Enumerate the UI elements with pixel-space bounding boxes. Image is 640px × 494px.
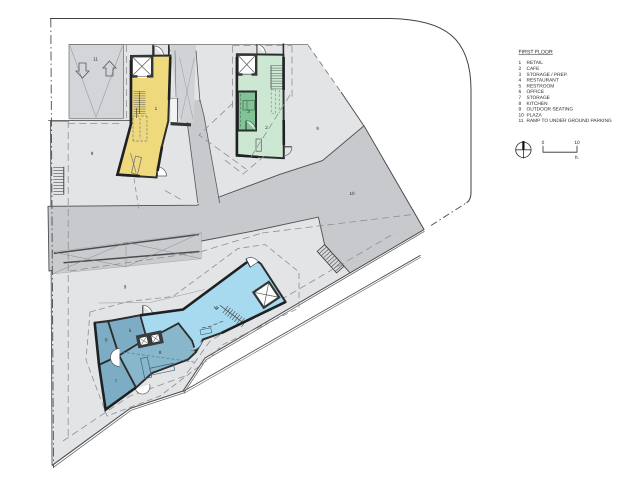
svg-text:STORAGE: STORAGE	[527, 95, 550, 101]
svg-text:6: 6	[519, 89, 522, 95]
svg-text:2: 2	[519, 66, 522, 72]
svg-text:ft.: ft.	[575, 155, 579, 161]
svg-text:5: 5	[129, 328, 132, 333]
svg-text:9: 9	[91, 151, 94, 156]
svg-text:STORAGE / PREP.: STORAGE / PREP.	[527, 72, 568, 78]
svg-text:OFFICE: OFFICE	[527, 89, 545, 95]
svg-text:9: 9	[124, 285, 127, 290]
svg-text:CAFE: CAFE	[527, 66, 540, 72]
svg-text:10: 10	[574, 140, 580, 146]
svg-text:9: 9	[519, 107, 522, 113]
svg-text:RETAIL: RETAIL	[527, 60, 544, 66]
svg-text:RESTAURANT: RESTAURANT	[527, 78, 559, 84]
svg-text:FIRST FLOOR: FIRST FLOOR	[519, 50, 553, 56]
svg-text:5: 5	[519, 83, 522, 89]
svg-text:2: 2	[265, 125, 268, 130]
svg-text:1: 1	[519, 60, 522, 66]
svg-text:KITCHEN: KITCHEN	[527, 101, 549, 107]
svg-text:RAMP TO UNDER GROUND PARKING: RAMP TO UNDER GROUND PARKING	[527, 118, 612, 124]
svg-text:4: 4	[519, 78, 522, 84]
svg-text:RESTROOM: RESTROOM	[527, 83, 555, 89]
svg-text:10: 10	[519, 112, 525, 118]
svg-text:0: 0	[542, 140, 545, 146]
svg-text:7: 7	[519, 95, 522, 101]
svg-text:11: 11	[519, 118, 524, 124]
svg-text:6: 6	[105, 337, 108, 342]
svg-text:9: 9	[316, 126, 319, 131]
svg-text:OUTDOOR SEATING: OUTDOOR SEATING	[527, 107, 574, 113]
svg-text:11: 11	[93, 56, 98, 61]
svg-text:3: 3	[519, 72, 522, 78]
svg-text:PLAZA: PLAZA	[527, 112, 543, 118]
svg-text:10: 10	[349, 191, 355, 196]
svg-text:3: 3	[247, 109, 250, 114]
svg-text:7: 7	[115, 379, 118, 384]
svg-text:8: 8	[159, 350, 162, 355]
svg-text:1: 1	[155, 106, 158, 111]
svg-text:8: 8	[519, 101, 522, 107]
svg-text:4: 4	[215, 305, 218, 310]
